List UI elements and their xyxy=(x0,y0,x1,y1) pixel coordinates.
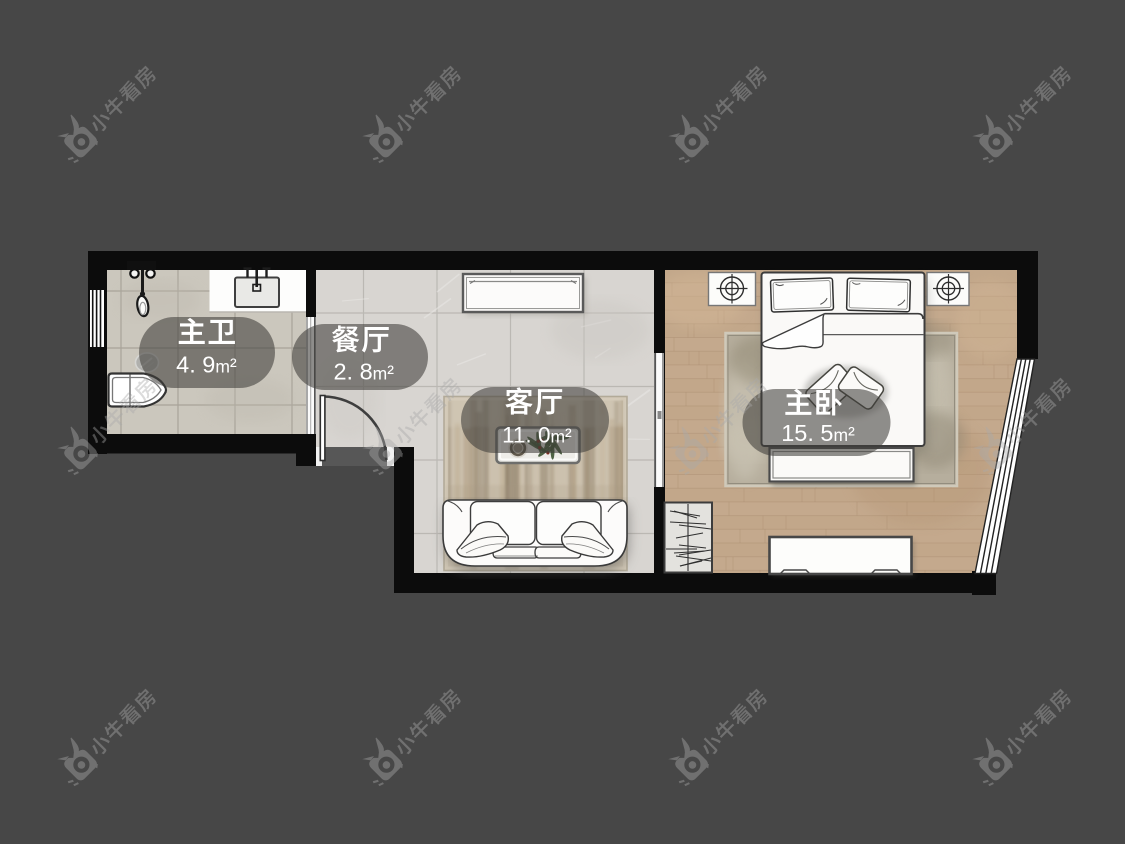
svg-text:11. 0m²: 11. 0m² xyxy=(502,423,572,448)
